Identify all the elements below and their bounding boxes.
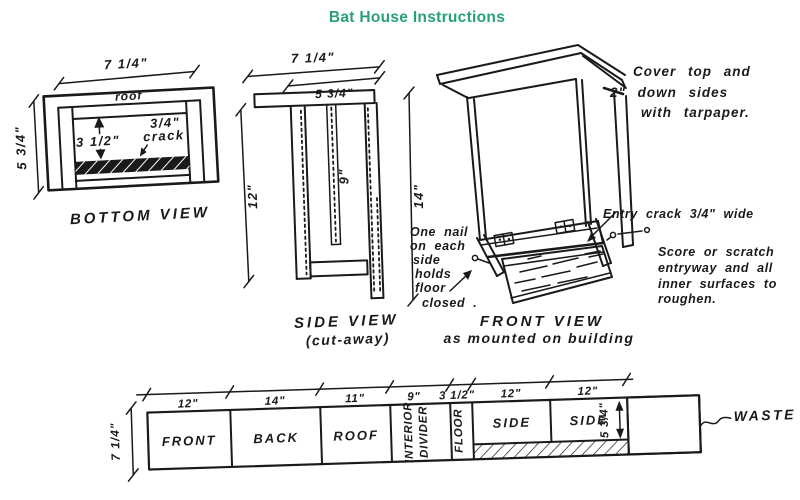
nail-note-line4: holds [415, 267, 451, 281]
crack-pointer-arrow [139, 145, 148, 156]
wood-grain [515, 251, 603, 291]
side-height-dim-label: 5 3/4" [598, 402, 611, 438]
segment-width-back: 14" [265, 395, 286, 408]
score-note-line1: Score or scratch [658, 245, 774, 259]
bottom-width-dim: 7 1/4" [104, 55, 149, 72]
waste-strip-hatch [473, 439, 628, 459]
segment-width-front: 12" [178, 398, 199, 411]
side-view-subcaption: (cut-away) [306, 330, 391, 349]
waste-label: WASTE [733, 406, 796, 424]
front-height-dim: 14" [411, 183, 426, 208]
segment-label-floor: FLOOR [452, 408, 465, 453]
roof-slab [437, 45, 626, 98]
layout-height-dim: 7 1/4" [108, 422, 123, 461]
nail-note: One nail on each side holds floor closed… [410, 225, 477, 310]
segment-width-roof: 11" [345, 393, 365, 406]
layout-height-dimension-line [126, 402, 138, 481]
front-view-drawing: 14" [404, 45, 777, 346]
segment-width-side1: 12" [500, 388, 521, 401]
score-note-line3: inner surfaces to [658, 277, 777, 291]
segment-label-divider-line2: DIVIDER [417, 406, 431, 459]
nail-note-arrow [450, 270, 472, 291]
nail-note-line6: closed . [422, 296, 477, 310]
segment-label-front: FRONT [162, 432, 217, 449]
crack-dim-line2: crack [143, 127, 185, 144]
cavity-depth-dim: 3 1/2" [76, 133, 121, 150]
side-height-arrow [615, 401, 624, 439]
segment-width-side2: 12" [577, 385, 598, 398]
side-width-dim: 7 1/4" [291, 49, 336, 66]
divider-length-dim: 9" [336, 168, 352, 185]
score-note: Score or scratch entryway and all inner … [658, 245, 777, 306]
entry-crack-note: Entry crack 3/4" wide [603, 207, 754, 221]
side-view-drawing: 7 1/4" 5 3/4" 9" [234, 47, 400, 350]
side-height-dim: 12" [244, 184, 260, 210]
front-view-caption: FRONT VIEW [480, 313, 604, 330]
bottom-height-dim: 5 3/4" [12, 125, 29, 170]
bottom-height-dimension-line [29, 95, 44, 199]
score-note-line4: roughen. [658, 292, 716, 306]
front-view-subcaption: as mounted on building [444, 330, 635, 346]
bottom-view-caption: BOTTOM VIEW [70, 204, 211, 228]
segment-label-side1: SIDE [492, 415, 531, 431]
cavity-bottom-line [76, 175, 190, 181]
instruction-sheet: Bat House Instructions 7 1/4" roof [0, 0, 800, 500]
layout-width-dimension-line [137, 373, 633, 401]
right-nail [607, 228, 649, 240]
nail-note-line5: floor [415, 281, 446, 295]
nail-note-line1: One nail [410, 225, 468, 239]
segment-label-roof: ROOF [333, 427, 379, 443]
tarpaper-note-line3: with tarpaper. [641, 105, 750, 120]
tarpaper-note: Cover top and 2" down sides with tarpape… [609, 64, 751, 120]
floor-board [310, 260, 367, 276]
tarpaper-note-line2: 2" down sides [609, 85, 728, 100]
segment-label-back: BACK [253, 430, 299, 446]
front-board [291, 105, 311, 278]
house-box [467, 79, 633, 247]
bottom-view-drawing: 7 1/4" roof 3 1/2" [9, 52, 221, 231]
entry-crack-band [75, 156, 190, 175]
side-view-caption: SIDE VIEW [294, 311, 399, 332]
roof-label: roof [115, 88, 143, 103]
score-note-line2: entryway and all [658, 261, 773, 275]
tarpaper-note-line1: Cover top and [633, 64, 751, 79]
segment-label-divider-line1: INTERIOR [402, 401, 416, 463]
waste-leader-squiggle [701, 417, 731, 425]
nail-note-line2: on each [410, 239, 465, 253]
segment-width-floor: 3 1/2" [439, 389, 475, 402]
floor-frame-band [480, 221, 603, 257]
cutting-layout-drawing: 12" 14" 11" 9" 3 1/2" 12" 12" 7 1/4" [107, 368, 798, 482]
side-inner-width-dim: 5 3/4" [315, 86, 354, 101]
nail-note-line3: side [413, 253, 440, 267]
diagram-canvas: 7 1/4" roof 3 1/2" [0, 0, 800, 500]
waste-block-hatch [627, 395, 701, 454]
